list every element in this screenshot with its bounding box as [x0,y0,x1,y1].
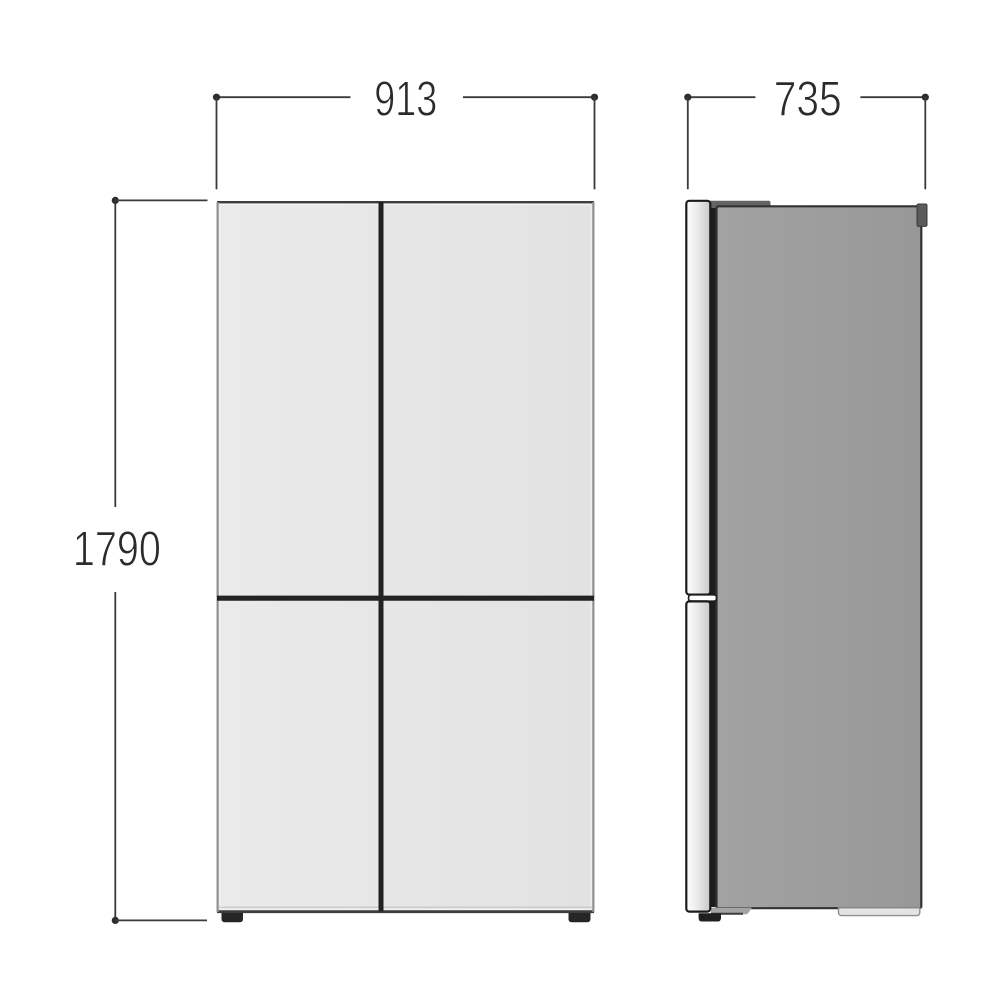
svg-text:735: 735 [774,72,842,127]
svg-text:913: 913 [374,72,437,127]
svg-text:1790: 1790 [73,521,161,576]
